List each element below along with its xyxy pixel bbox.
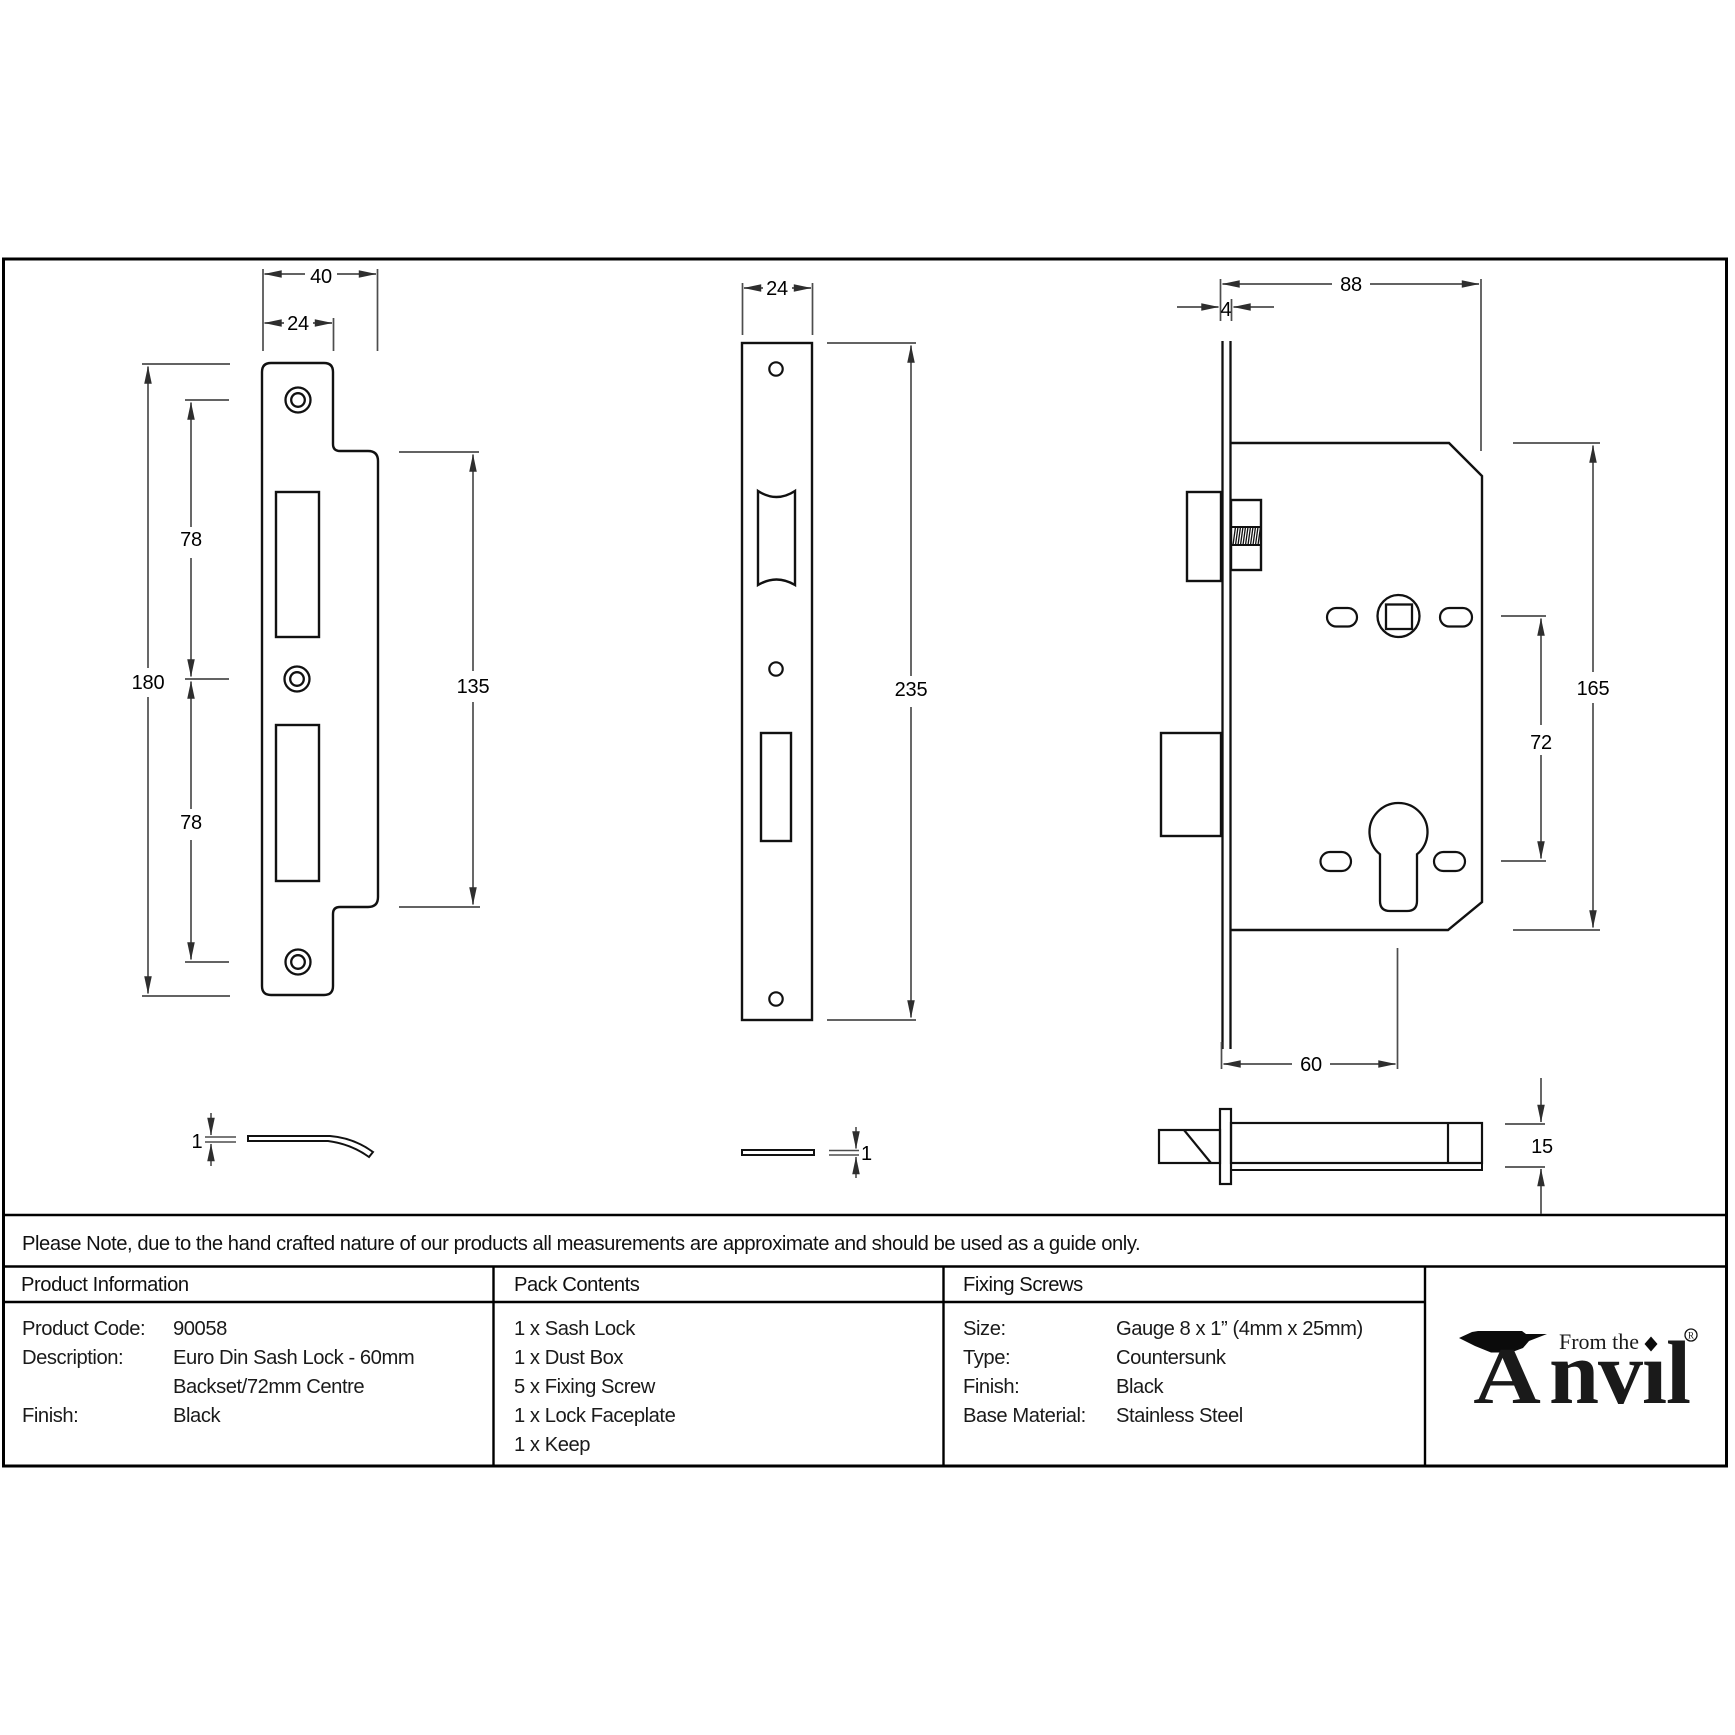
svg-text:Description:: Description: (22, 1347, 123, 1369)
svg-text:180: 180 (132, 672, 165, 694)
svg-text:Product Code:: Product Code: (22, 1318, 145, 1340)
svg-text:90058: 90058 (173, 1318, 227, 1340)
svg-text:Black: Black (173, 1405, 221, 1427)
svg-text:Euro Din Sash Lock - 60mm: Euro Din Sash Lock - 60mm (173, 1347, 414, 1369)
svg-text:R: R (1688, 1331, 1694, 1341)
svg-text:Gauge 8 x 1” (4mm x 25mm): Gauge 8 x 1” (4mm x 25mm) (1116, 1318, 1363, 1340)
svg-text:72: 72 (1530, 732, 1552, 754)
svg-text:60: 60 (1300, 1054, 1322, 1076)
svg-text:Type:: Type: (963, 1347, 1010, 1369)
svg-text:Black: Black (1116, 1376, 1164, 1398)
svg-text:1 x Dust Box: 1 x Dust Box (514, 1347, 623, 1369)
svg-text:Base Material:: Base Material: (963, 1405, 1086, 1427)
svg-text:Please Note, due to the hand c: Please Note, due to the hand crafted nat… (22, 1233, 1140, 1255)
svg-text:Backset/72mm Centre: Backset/72mm Centre (173, 1376, 364, 1398)
svg-text:5 x Fixing Screw: 5 x Fixing Screw (514, 1376, 656, 1398)
svg-text:88: 88 (1340, 274, 1362, 296)
svg-text:24: 24 (287, 313, 309, 335)
svg-text:235: 235 (895, 679, 928, 701)
svg-text:Pack Contents: Pack Contents (514, 1274, 640, 1296)
svg-text:24: 24 (766, 278, 788, 300)
svg-text:15: 15 (1531, 1136, 1553, 1158)
svg-text:78: 78 (180, 529, 202, 551)
svg-text:Finish:: Finish: (22, 1405, 78, 1427)
svg-text:Finish:: Finish: (963, 1376, 1019, 1398)
svg-text:1 x Keep: 1 x Keep (514, 1434, 590, 1456)
svg-text:Product Information: Product Information (21, 1274, 189, 1296)
svg-text:Stainless Steel: Stainless Steel (1116, 1405, 1243, 1427)
svg-text:165: 165 (1577, 678, 1610, 700)
svg-text:Fixing Screws: Fixing Screws (963, 1274, 1083, 1296)
svg-text:1: 1 (861, 1143, 872, 1165)
svg-text:40: 40 (310, 266, 332, 288)
svg-text:1 x Lock Faceplate: 1 x Lock Faceplate (514, 1405, 676, 1427)
svg-text:From the: From the (1559, 1329, 1639, 1354)
svg-text:135: 135 (457, 676, 490, 698)
svg-text:A: A (1473, 1331, 1541, 1420)
svg-text:Size:: Size: (963, 1318, 1006, 1340)
svg-text:4: 4 (1221, 299, 1232, 321)
svg-text:1: 1 (192, 1131, 203, 1153)
svg-text:78: 78 (180, 812, 202, 834)
svg-text:Countersunk: Countersunk (1116, 1347, 1227, 1369)
svg-text:1 x Sash Lock: 1 x Sash Lock (514, 1318, 636, 1340)
